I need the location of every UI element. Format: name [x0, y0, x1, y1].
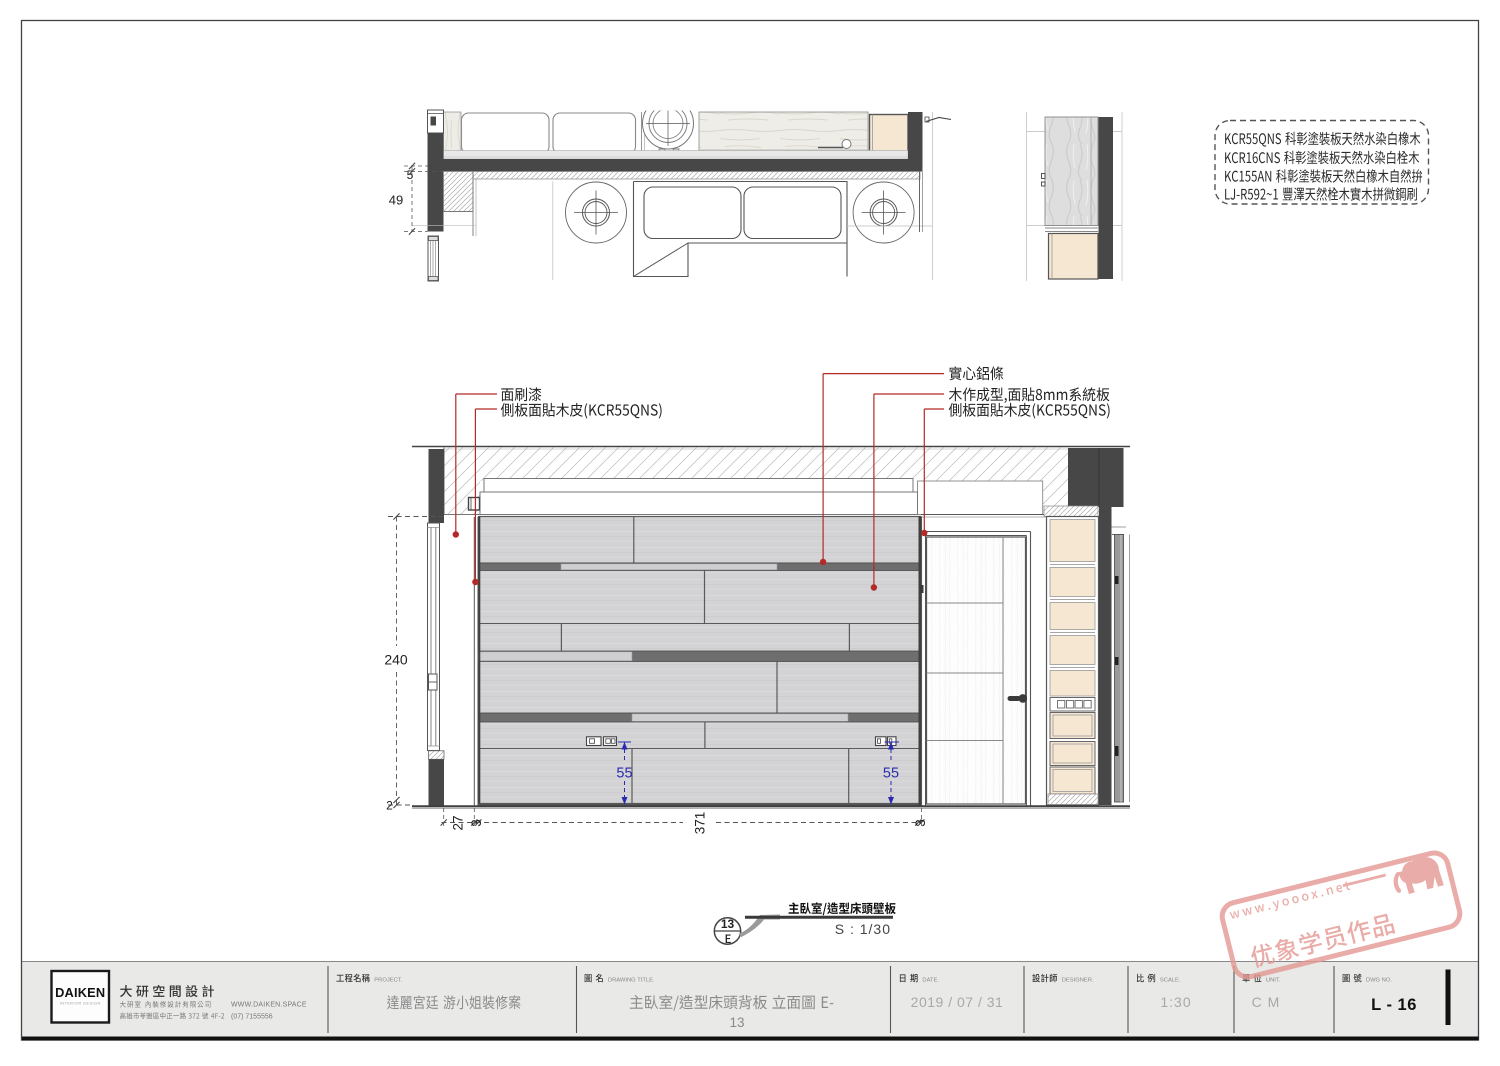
svg-text:UNIT.: UNIT.	[1266, 978, 1281, 984]
svg-text:2019 / 07 / 31: 2019 / 07 / 31	[911, 994, 1004, 1010]
svg-text:55: 55	[883, 766, 899, 782]
svg-text:5: 5	[407, 168, 414, 182]
svg-text:WWW.DAIKEN.SPACE: WWW.DAIKEN.SPACE	[231, 1002, 307, 1009]
svg-text:DATE.: DATE.	[922, 978, 939, 984]
svg-text:3: 3	[913, 819, 928, 827]
svg-text:13: 13	[729, 1015, 744, 1030]
svg-text:(07) 7155556: (07) 7155556	[231, 1014, 273, 1021]
svg-text:S : 1/30: S : 1/30	[835, 921, 891, 937]
svg-text:240: 240	[384, 652, 408, 668]
svg-text:SCALE.: SCALE.	[1160, 978, 1181, 984]
svg-text:DAIKEN: DAIKEN	[55, 985, 105, 1000]
svg-text:DRAWING TITLE.: DRAWING TITLE.	[608, 978, 655, 984]
svg-text:371: 371	[693, 812, 708, 835]
svg-text:2: 2	[386, 799, 393, 813]
svg-text:PROJECT.: PROJECT.	[374, 978, 402, 984]
svg-text:DESIGNER.: DESIGNER.	[1062, 978, 1094, 984]
svg-text:3: 3	[469, 819, 484, 827]
svg-text:1:30: 1:30	[1160, 994, 1191, 1010]
svg-text:27: 27	[451, 815, 466, 830]
svg-text:55: 55	[616, 766, 632, 782]
svg-text:13: 13	[721, 917, 735, 931]
svg-text:49: 49	[389, 193, 403, 208]
svg-text:C M: C M	[1252, 994, 1281, 1010]
svg-text:DWG NO.: DWG NO.	[1366, 978, 1392, 984]
svg-text:INTERIOR DESIGN: INTERIOR DESIGN	[60, 1002, 101, 1006]
svg-text:L - 16: L - 16	[1371, 996, 1417, 1014]
